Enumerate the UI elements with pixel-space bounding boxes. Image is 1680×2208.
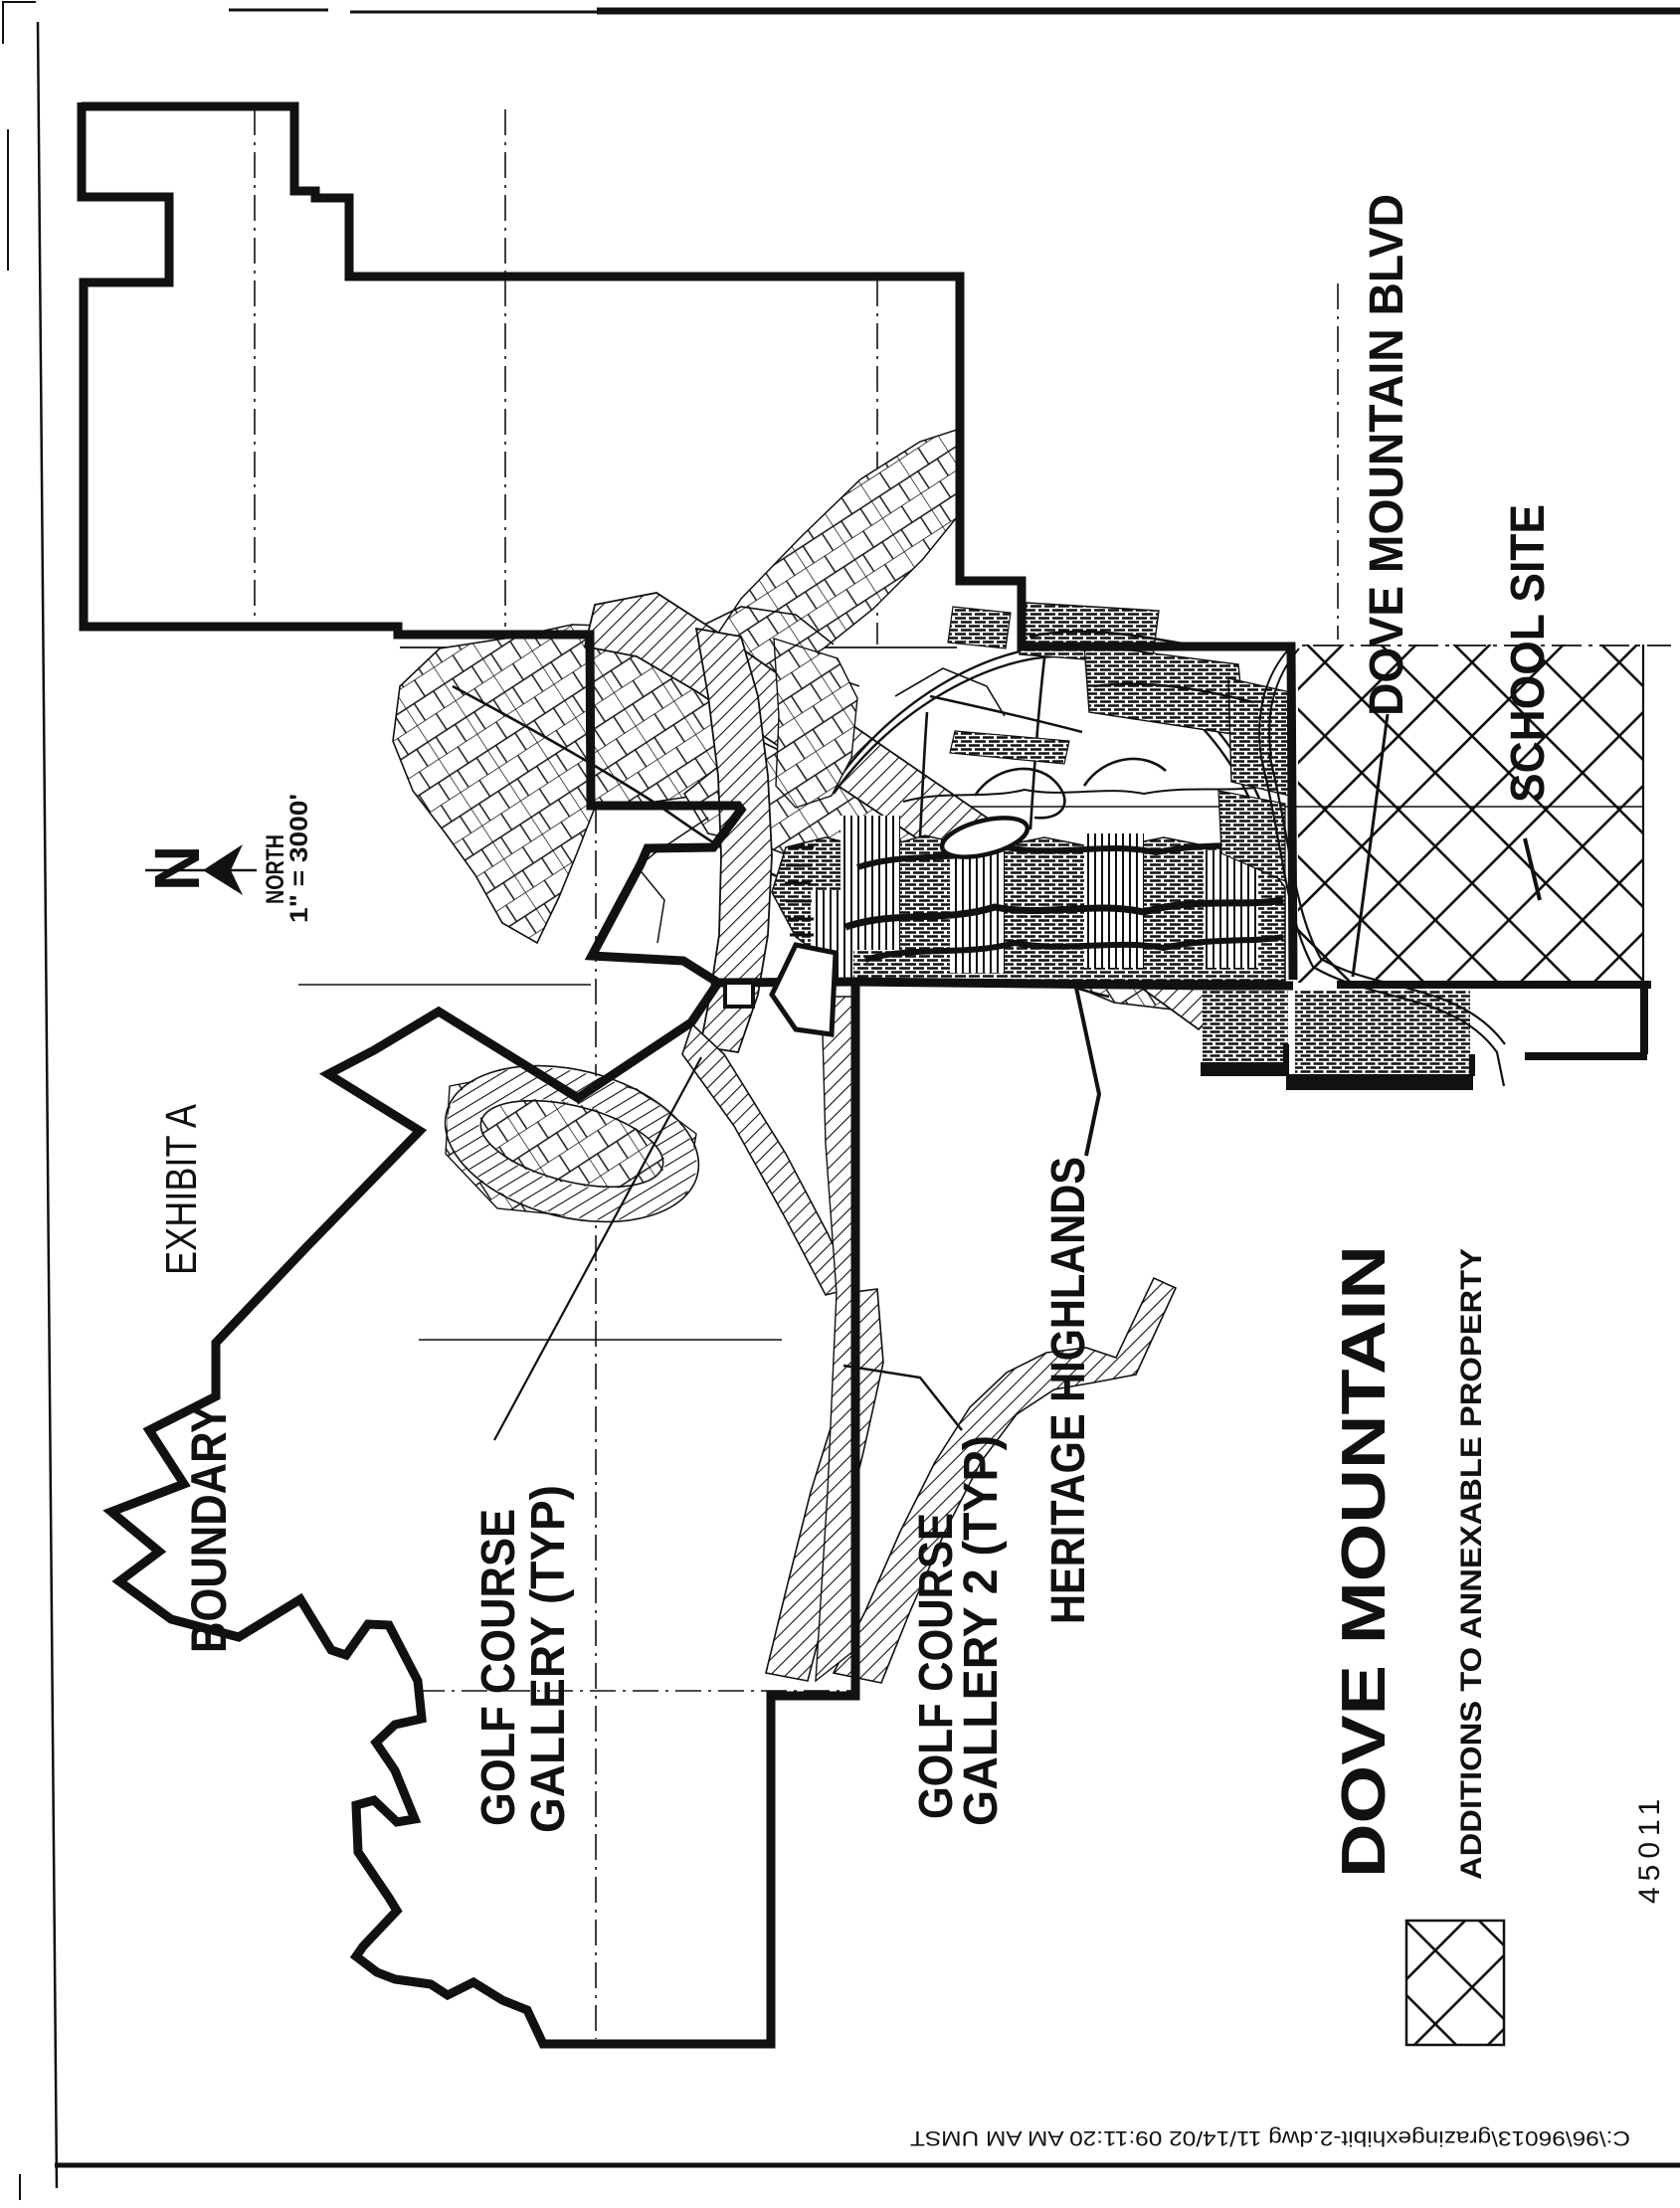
svg-text:DOVE MOUNTAIN: DOVE MOUNTAIN xyxy=(1330,1245,1399,1878)
svg-text:BOUNDARY: BOUNDARY xyxy=(181,1404,237,1653)
svg-text:EXHIBIT A: EXHIBIT A xyxy=(157,1103,206,1275)
svg-text:HERITAGE HIGHLANDS: HERITAGE HIGHLANDS xyxy=(1042,1157,1095,1624)
svg-text:1" = 3000': 1" = 3000' xyxy=(285,794,313,923)
svg-text:SCHOOL SITE: SCHOOL SITE xyxy=(1502,504,1555,803)
svg-text:45011: 45011 xyxy=(1633,1793,1666,1904)
svg-text:N: N xyxy=(141,845,213,891)
svg-text:ADDITIONS TO ANNEXABLE PROPERT: ADDITIONS TO ANNEXABLE PROPERTY xyxy=(1455,1248,1488,1880)
svg-text:GOLF COURSE: GOLF COURSE xyxy=(472,1509,525,1826)
svg-text:GALLERY 2 (TYP): GALLERY 2 (TYP) xyxy=(955,1435,1008,1826)
svg-text:GALLERY (TYP): GALLERY (TYP) xyxy=(522,1485,575,1833)
svg-text:C:\96\96013\grazingexhibit-2.d: C:\96\96013\grazingexhibit-2.dwg 11/14/0… xyxy=(910,2126,1630,2149)
svg-text:DOVE MOUNTAIN BLVD: DOVE MOUNTAIN BLVD xyxy=(1361,194,1413,716)
